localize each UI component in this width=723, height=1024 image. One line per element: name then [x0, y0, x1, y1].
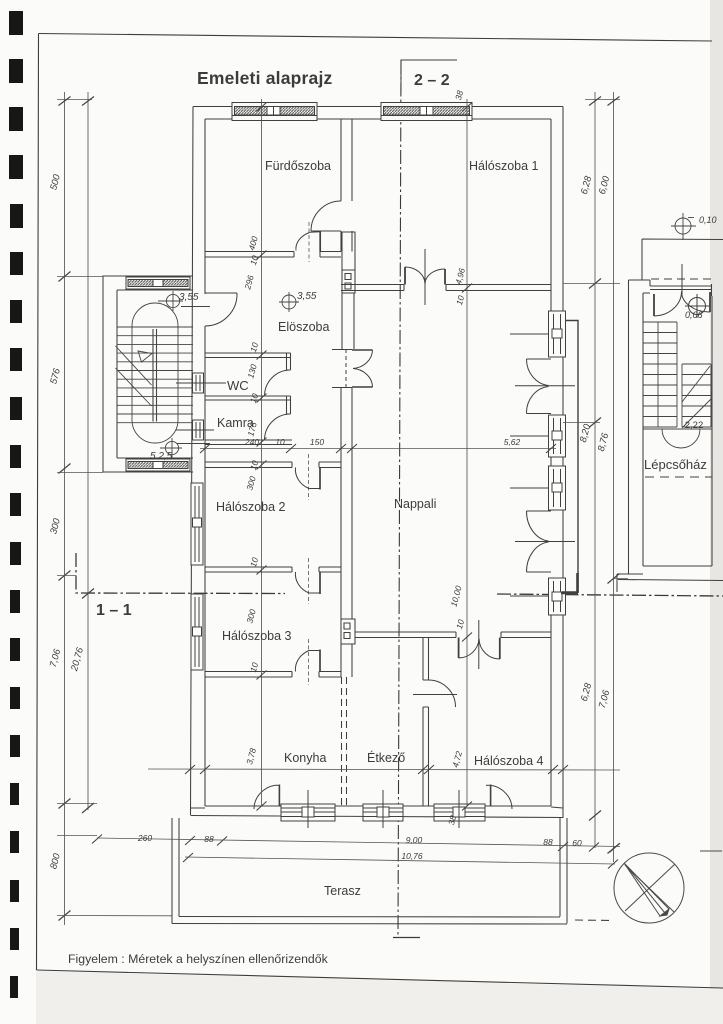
svg-text:Nappali: Nappali [394, 497, 436, 511]
svg-text:Fürdőszoba: Fürdőszoba [265, 159, 331, 173]
svg-text:60: 60 [572, 838, 582, 848]
svg-text:Étkező: Étkező [367, 750, 405, 765]
svg-text:Elöszoba: Elöszoba [278, 320, 329, 334]
svg-text:10,76: 10,76 [401, 851, 423, 861]
svg-text:3,55: 3,55 [297, 291, 317, 302]
svg-text:Hálószoba 4: Hálószoba 4 [474, 754, 544, 768]
svg-text:Hálószoba 1: Hálószoba 1 [469, 159, 539, 173]
svg-text:0,10: 0,10 [699, 215, 717, 225]
svg-text:Terasz: Terasz [324, 884, 361, 898]
svg-text:2 – 2: 2 – 2 [414, 72, 450, 89]
svg-text:240: 240 [244, 437, 259, 447]
svg-text:5 2,5: 5 2,5 [150, 451, 173, 462]
svg-text:Konyha: Konyha [284, 751, 326, 765]
svg-text:Kamra: Kamra [217, 416, 254, 430]
svg-text:Emeleti alaprajz: Emeleti alaprajz [197, 68, 333, 88]
svg-text:Hálószoba 2: Hálószoba 2 [216, 500, 286, 514]
svg-text:Hálószoba 3: Hálószoba 3 [222, 629, 292, 643]
svg-text:260: 260 [137, 833, 152, 843]
svg-text:Lépcsőház: Lépcsőház [644, 457, 707, 472]
svg-text:10: 10 [275, 437, 285, 447]
svg-text:3,55: 3,55 [179, 292, 199, 303]
svg-text:2,22: 2,22 [685, 420, 704, 431]
svg-text:5,62: 5,62 [504, 437, 521, 447]
svg-text:0,06: 0,06 [685, 310, 703, 320]
svg-text:88: 88 [543, 837, 553, 847]
svg-text:1 – 1: 1 – 1 [96, 602, 132, 619]
svg-text:150: 150 [310, 437, 324, 447]
svg-text:9,00: 9,00 [406, 835, 423, 845]
svg-text:WC: WC [227, 378, 249, 393]
svg-text:Figyelem : Méretek a helyszíne: Figyelem : Méretek a helyszínen ellenőri… [68, 952, 329, 966]
svg-text:88: 88 [204, 834, 214, 844]
